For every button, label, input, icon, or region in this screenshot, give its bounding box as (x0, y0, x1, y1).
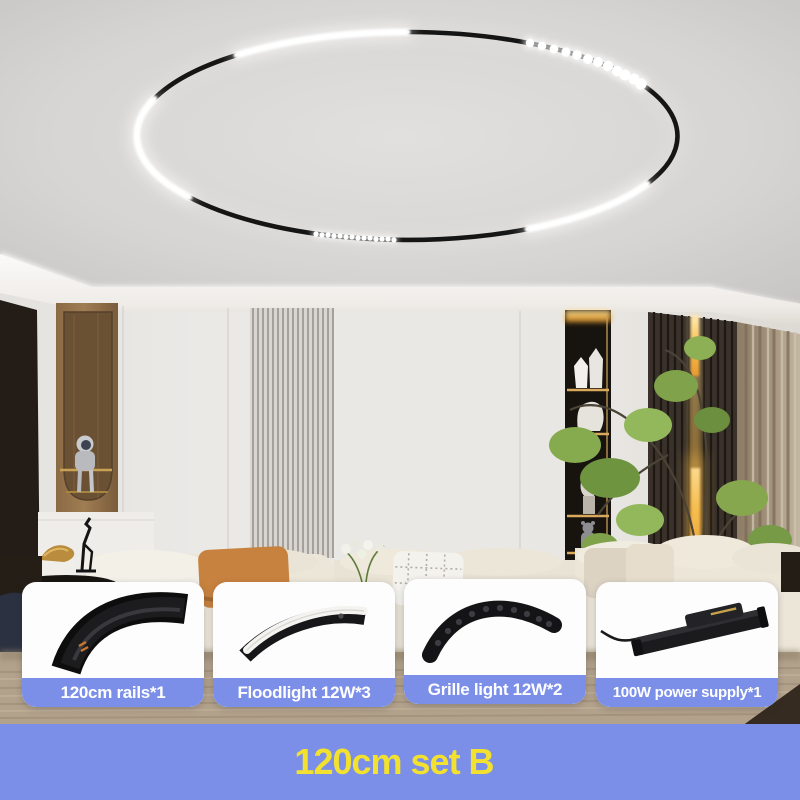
product-card-power-supply: 100W power supply*1 (596, 582, 778, 707)
card-label: 100W power supply*1 (596, 678, 778, 707)
wood-niche (56, 303, 118, 515)
rail-product-image (22, 582, 204, 678)
product-showcase-image: 120cm rails*1 Floodlight 12W*3 Grille li… (0, 0, 800, 800)
card-label: Grille light 12W*2 (404, 675, 586, 704)
right-side-table (781, 552, 800, 592)
power-supply-product-image (596, 582, 778, 678)
product-card-rails: 120cm rails*1 (22, 582, 204, 707)
grille-light-product-image (404, 579, 586, 675)
product-card-floodlight: Floodlight 12W*3 (213, 582, 395, 707)
set-banner-text: 120cm set B (294, 741, 493, 783)
card-label: 120cm rails*1 (22, 678, 204, 707)
floodlight-product-image (213, 582, 395, 678)
product-card-grille-light: Grille light 12W*2 (404, 579, 586, 704)
left-dark-wall (0, 300, 40, 600)
card-label: Floodlight 12W*3 (213, 678, 395, 707)
set-banner: 120cm set B (0, 724, 800, 800)
slat-wall-panel (250, 308, 334, 558)
